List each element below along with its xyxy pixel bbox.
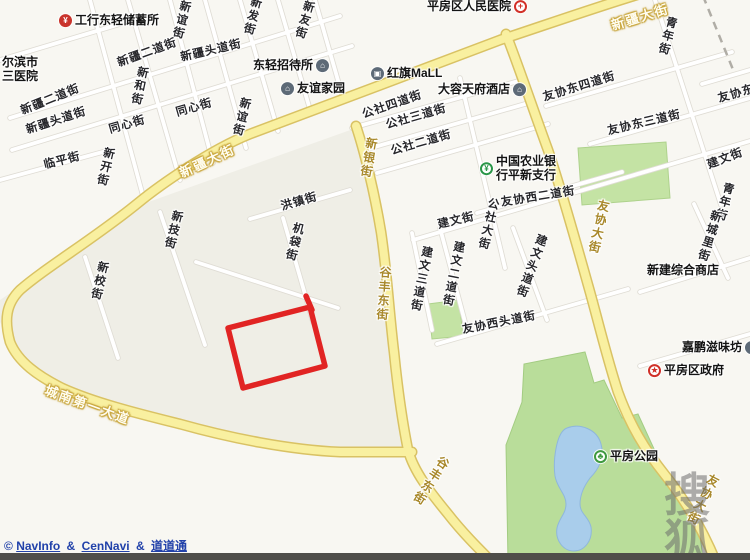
- street-label: 同心街: [174, 94, 214, 120]
- road-label: 谷丰东街: [409, 453, 454, 509]
- street-label: 新谊街: [228, 95, 253, 138]
- poi-youyi-homes[interactable]: ⌂友谊家园: [281, 82, 345, 96]
- poi-label: 友谊家园: [297, 82, 345, 96]
- street-label: 新开街: [93, 145, 118, 188]
- poi-dongqing-hostel[interactable]: 东轻招待所⌂: [253, 59, 329, 73]
- poi-hongqi-mall[interactable]: ▣红旗MaLL: [371, 67, 442, 81]
- street-label: 新发街: [239, 0, 264, 38]
- map-canvas[interactable]: 新发街新谊街新友街新疆二道街新疆头道街新和街新疆二道街同心街新疆头道街同心街新谊…: [0, 0, 750, 560]
- bottom-bar: [0, 553, 750, 560]
- poi-label: 工行东轻储蓄所: [75, 14, 159, 28]
- poi-label: 红旗MaLL: [387, 67, 442, 81]
- road-label: 友协大街: [585, 198, 613, 256]
- mall-icon: ▣: [371, 67, 384, 80]
- poi-pingfang-hospital[interactable]: 平房区人民医院+: [427, 0, 527, 14]
- street-label: 建文街: [436, 208, 476, 232]
- bank-green-icon: ¥: [480, 163, 493, 176]
- street-label: 建文三道街: [407, 244, 436, 313]
- poi-label-line2: 行平新支行: [496, 169, 556, 183]
- street-label: 友协西头道街: [461, 307, 538, 337]
- poi-label: 嘉鹏滋味坊: [682, 341, 742, 355]
- poi-jiapeng-shop[interactable]: 嘉鹏滋味坊▪: [682, 341, 750, 355]
- attribution-separator: &: [136, 539, 145, 553]
- poi-third-hospital[interactable]: 尔滨市三医院: [2, 56, 38, 84]
- poi-pingfang-park[interactable]: ♣平房公园: [594, 450, 658, 464]
- road-label: 新疆大街: [176, 139, 238, 182]
- poi-tianfu-hotel[interactable]: 大容天府酒店⌂: [438, 83, 526, 97]
- street-label: 同心街: [107, 111, 147, 137]
- poi-label: 中国农业银: [496, 155, 556, 169]
- attribution-link-cennavi[interactable]: CenNavi: [82, 539, 130, 553]
- community-icon: ⌂: [281, 82, 294, 95]
- street-label: 洪镇街: [279, 188, 319, 214]
- poi-pingfang-gov[interactable]: ★平房区政府: [648, 364, 724, 378]
- copyright-symbol: ©: [4, 539, 13, 553]
- poi-label: 平房区政府: [664, 364, 724, 378]
- street-label: 公社大街: [474, 196, 502, 252]
- street-label: 新和街: [127, 65, 151, 108]
- road-label: 新银街: [357, 136, 381, 180]
- label-layer: 新发街新谊街新友街新疆二道街新疆头道街新和街新疆二道街同心街新疆头道街同心街新谊…: [0, 0, 750, 560]
- poi-label: 东轻招待所: [253, 59, 313, 73]
- poi-label-line2: 三医院: [2, 70, 38, 84]
- street-label: 建文二道街: [439, 239, 468, 308]
- poi-xinjian-store[interactable]: 新建综合商店: [647, 264, 719, 278]
- street-label: 友协东四道街: [541, 67, 617, 104]
- inn-icon: ⌂: [316, 59, 329, 72]
- street-label: 友协西二道街: [500, 182, 577, 210]
- park-icon: ♣: [594, 450, 607, 463]
- street-label: 建文街: [705, 144, 746, 172]
- poi-label: 尔滨市: [2, 56, 38, 70]
- road-label: 友协大街: [683, 471, 724, 529]
- poi-abc-bank-pingxin[interactable]: ¥中国农业银行平新支行: [480, 155, 556, 183]
- map-attribution: © NavInfo & CenNavi & 道道通: [4, 537, 187, 554]
- street-label: 公社二道街: [389, 126, 453, 159]
- street-label: 机袋街: [281, 220, 306, 263]
- hotel-icon: ⌂: [513, 83, 526, 96]
- poi-icbc-savings[interactable]: ¥工行东轻储蓄所: [59, 14, 159, 28]
- street-label: 青年街: [654, 14, 680, 57]
- attribution-link-navinfo[interactable]: NavInfo: [16, 539, 60, 553]
- street-label: 临平街: [42, 148, 82, 173]
- shop-icon: ▪: [745, 341, 750, 354]
- poi-label: 新建综合商店: [647, 264, 719, 278]
- hospital-icon: +: [514, 0, 527, 13]
- poi-label: 大容天府酒店: [438, 83, 510, 97]
- gov-icon: ★: [648, 364, 661, 377]
- attribution-separator: &: [67, 539, 76, 553]
- poi-label: 平房公园: [610, 450, 658, 464]
- street-label: 友协东: [716, 80, 750, 106]
- street-label: 新技街: [160, 208, 185, 251]
- road-label: 谷丰东街: [374, 265, 395, 322]
- poi-label: 平房区人民医院: [427, 0, 511, 14]
- street-label: 建文头道街: [512, 232, 550, 301]
- bank-icon: ¥: [59, 14, 72, 27]
- road-label: 城南第一大道: [42, 380, 133, 429]
- street-label: 新疆二道街: [115, 34, 179, 70]
- street-label: 新校街: [87, 259, 112, 302]
- attribution-link-daodaotong[interactable]: 道道通: [151, 539, 187, 553]
- street-label: 新城里街: [693, 208, 724, 264]
- street-label: 新疆头道街: [179, 35, 243, 65]
- street-label: 新友街: [291, 0, 318, 42]
- street-label: 友协东三道街: [606, 106, 683, 138]
